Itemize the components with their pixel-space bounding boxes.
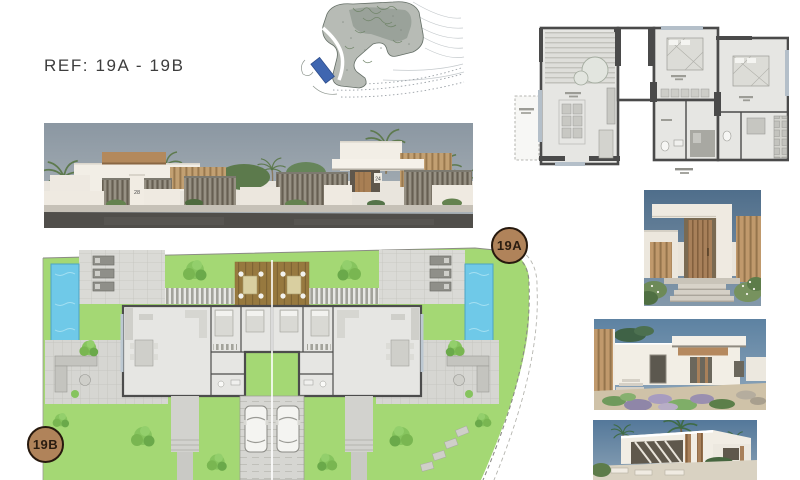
- page-title: REF: 19A - 19B: [44, 56, 185, 76]
- entry-walkway: [171, 396, 199, 452]
- landscape-site-plan: [35, 244, 540, 480]
- car: [244, 406, 269, 452]
- plan-outdoor-terrace: [515, 96, 539, 160]
- unit-badge-19b-label: 19B: [33, 437, 58, 452]
- unit-badge-19b: 19B: [27, 426, 64, 463]
- floor-plan: [511, 12, 789, 176]
- site-location-map: [293, 0, 465, 100]
- gate-number-right: 24: [375, 177, 381, 183]
- unit-badge-19a-label: 19A: [497, 238, 522, 253]
- street-sidewalk: [44, 205, 473, 212]
- entrance-steps: [664, 278, 740, 302]
- entrance-left-wall: [644, 230, 678, 278]
- pool-villa: [621, 430, 751, 464]
- pool-view-render: [593, 420, 757, 480]
- map-pool: [311, 57, 334, 83]
- side-treetop: [634, 326, 654, 336]
- side-view-render: [594, 319, 766, 410]
- entrance-render: [644, 190, 761, 306]
- unit-badge-19a: 19A: [491, 227, 528, 264]
- plot-blob: [323, 2, 424, 88]
- entrance-slat-screen: [736, 216, 761, 282]
- gate-number-left: 28: [134, 190, 140, 196]
- street-elevation-render: 24 28: [44, 123, 473, 228]
